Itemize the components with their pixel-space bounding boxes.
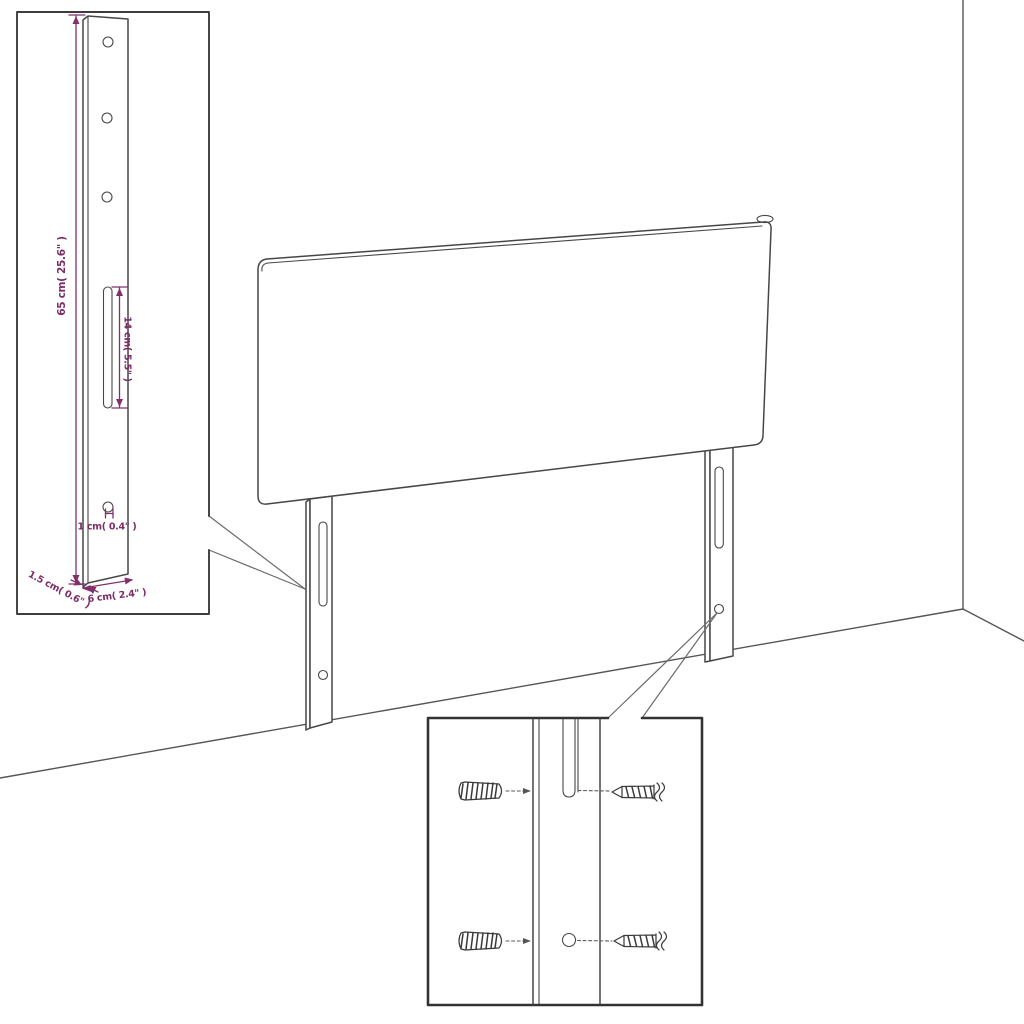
strip-slot — [563, 719, 575, 797]
callout-left-leg — [209, 516, 305, 589]
inset-leg-drawing — [83, 16, 128, 587]
headboard-left-leg — [306, 496, 332, 730]
headboard-panel — [258, 215, 773, 504]
diagram-line-art — [0, 0, 1024, 1024]
screw-lower — [614, 932, 667, 950]
inset-frame — [428, 718, 702, 1005]
slot-length-label: 14 cm( 5.5" ) — [122, 316, 133, 381]
headboard-right-leg — [705, 444, 733, 662]
screw-upper — [612, 783, 665, 801]
leg-height-label: 65 cm( 25.6" ) — [56, 236, 68, 316]
wall-plug-lower — [459, 932, 502, 950]
hole-diameter-label: 1 cm( 0.4" ) — [78, 522, 137, 533]
hardware-detail-inset — [428, 718, 702, 1005]
headboard-dimension-diagram: 65 cm( 25.6" ) 14 cm( 5.5" ) 1 cm( 0.4" … — [0, 0, 1024, 1024]
inset-leg-strip — [533, 719, 600, 1004]
strip-hole — [563, 934, 576, 947]
leader-lines — [506, 788, 612, 944]
callout-right-leg — [608, 613, 717, 718]
wall-plug-upper — [459, 782, 502, 800]
